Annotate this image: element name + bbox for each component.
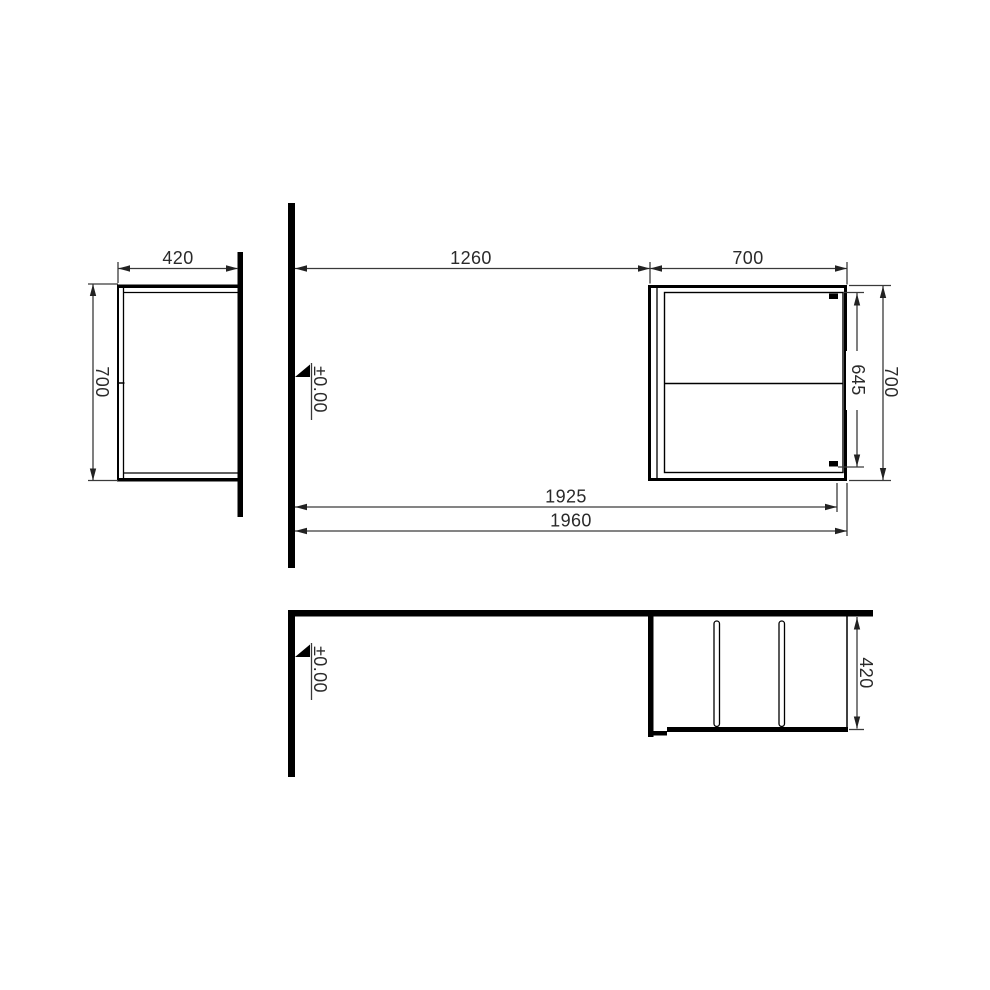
plan-left-side-panel xyxy=(648,617,654,738)
dimension-side-depth: 420 xyxy=(118,248,238,283)
level-triangle-icon xyxy=(295,645,310,658)
dim-label-unit-height: 700 xyxy=(881,366,901,397)
elevation-view: ±0.00 420 700 1260 xyxy=(88,203,901,568)
bottom-fitting-mark xyxy=(829,461,838,467)
side-top-edge xyxy=(117,285,238,289)
dim-label-unit-inner-height: 645 xyxy=(848,364,868,395)
dimension-wall-to-front-inner: 1925 xyxy=(295,483,837,512)
dim-label-overall-length: 1960 xyxy=(550,511,592,531)
dim-label-wall-to-unit: 1260 xyxy=(450,248,492,268)
unit-front-view xyxy=(650,287,846,480)
cabinet-side-view xyxy=(117,285,238,482)
side-wall-strip xyxy=(238,252,244,517)
level-marker-elevation: ±0.00 xyxy=(295,363,330,420)
level-marker-plan: ±0.00 xyxy=(295,643,330,700)
plan-slot-left xyxy=(714,621,720,727)
plan-front-edge xyxy=(667,727,848,732)
plan-slot-right xyxy=(779,621,785,727)
level-triangle-icon xyxy=(295,365,310,378)
dim-label-plan-depth: 420 xyxy=(856,657,876,688)
dimension-unit-width: 700 xyxy=(650,248,847,285)
main-wall-line xyxy=(288,203,295,568)
dim-label-side-depth: 420 xyxy=(162,248,193,268)
dimension-plan-depth: 420 xyxy=(849,617,876,730)
dim-label-wall-to-front-inner: 1925 xyxy=(545,487,587,507)
plan-wall-line xyxy=(288,610,873,617)
front-inner-box xyxy=(665,293,844,473)
side-bottom-edge xyxy=(117,478,238,482)
dim-label-side-height: 700 xyxy=(92,366,112,397)
top-fitting-mark xyxy=(829,294,838,300)
technical-drawing-canvas: ±0.00 420 700 1260 xyxy=(0,0,990,990)
plan-view: ±0.00 420 xyxy=(288,610,876,777)
dimension-wall-to-unit: 1260 xyxy=(295,248,650,284)
level-label: ±0.00 xyxy=(310,366,330,413)
unit-plan-view xyxy=(648,617,848,738)
plan-side-wall-line xyxy=(288,610,295,777)
level-label: ±0.00 xyxy=(310,646,330,693)
dimension-side-height: 700 xyxy=(88,284,118,481)
dim-label-unit-width: 700 xyxy=(732,248,763,268)
wall-unit-drawing: ±0.00 420 700 1260 xyxy=(0,0,990,990)
plan-front-step xyxy=(654,731,668,736)
